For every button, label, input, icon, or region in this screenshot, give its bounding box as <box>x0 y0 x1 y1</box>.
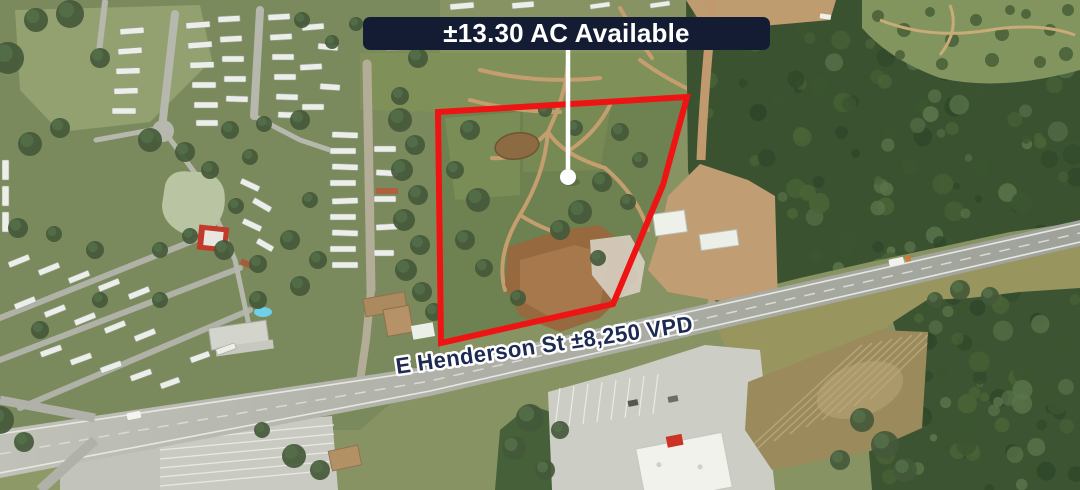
park-pond <box>162 171 225 235</box>
pin-dot <box>560 169 576 185</box>
aerial-listing-image: E Henderson St ±8,250 VPD ±13.30 AC Avai… <box>0 0 1080 490</box>
acreage-label-text: ±13.30 AC Available <box>443 18 689 49</box>
acreage-label: ±13.30 AC Available <box>363 17 770 50</box>
aerial-photo: E Henderson St ±8,250 VPD <box>0 0 1080 490</box>
